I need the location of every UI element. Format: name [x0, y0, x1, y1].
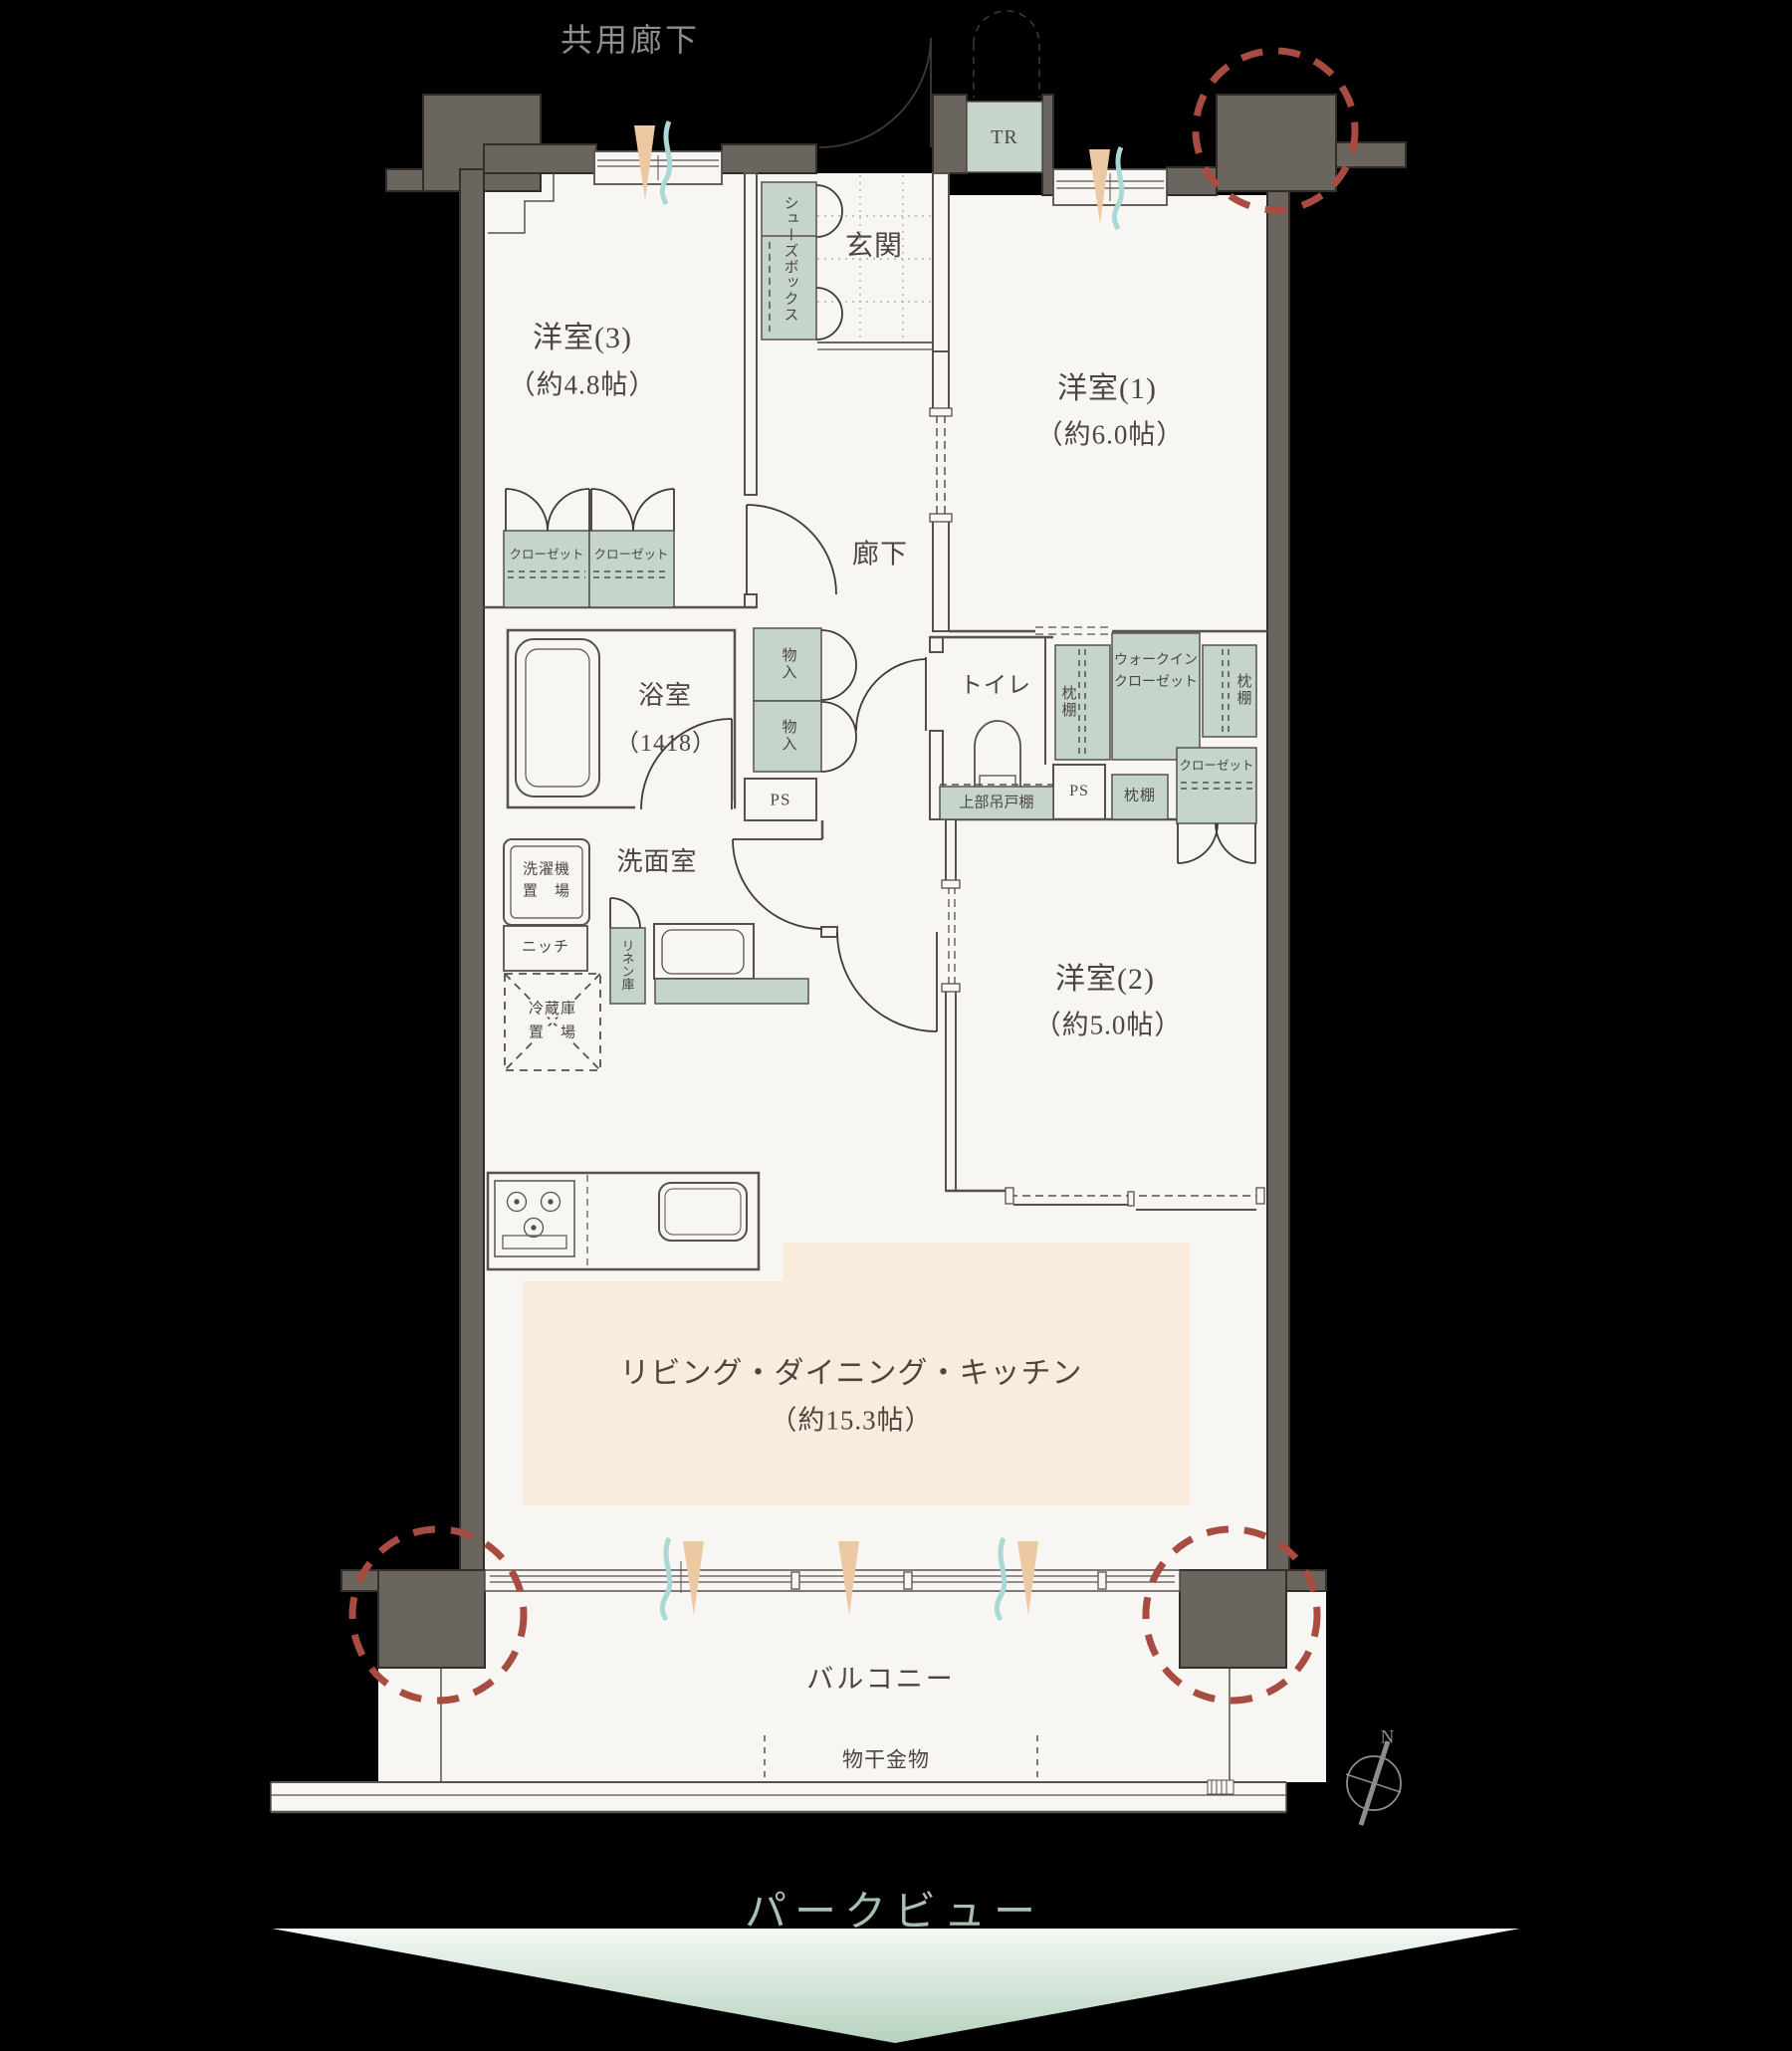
north-label: N [1381, 1728, 1396, 1747]
room1-label: 洋室(1) [1057, 374, 1157, 404]
drain-hatch-icon [1208, 1780, 1233, 1794]
laundry-label-line1: 洗濯機 [523, 863, 570, 878]
wic-label-line1: ウォークイン [1114, 654, 1198, 668]
laundry-hardware-label: 物干金物 [842, 1750, 930, 1771]
bath-label: 浴室 [638, 683, 692, 709]
pillow-shelf-right-label: 枕棚 [1235, 673, 1250, 707]
balcony-label: バルコニー [806, 1667, 955, 1694]
room1-size-label: （約6.0帖） [1036, 422, 1185, 449]
fridge-label-line1: 冷蔵庫 [526, 1003, 579, 1018]
floor-plan-page: 共用廊下 洋室(3) （約4.8帖） 洋室(1) （約6.0帖） 玄関 シューズ… [0, 0, 1792, 2051]
laundry-label-line2: 置 場 [523, 885, 570, 900]
trunk-room-label: TR [991, 127, 1018, 147]
wic-closet-label: クローゼット [1179, 760, 1253, 773]
common-corridor-label: 共用廊下 [560, 24, 700, 56]
ldk-size-label: （約15.3帖） [770, 1408, 932, 1435]
washroom-label: 洗面室 [616, 849, 697, 875]
pillow-shelf-bottom-label: 枕棚 [1124, 790, 1156, 804]
ldk-label: リビング・ダイニング・キッチン [620, 1359, 1083, 1389]
pillow-shelf-left-label: 枕棚 [1060, 685, 1075, 719]
niche-label: ニッチ [522, 941, 569, 956]
fridge-label-line2: 置 場 [526, 1026, 579, 1041]
closet2-label: クローゼット [593, 549, 668, 562]
corridor-label: 廊下 [852, 542, 908, 569]
linen-label: リネン庫 [621, 939, 634, 991]
room3-size-label: （約4.8帖） [509, 372, 657, 399]
floor-plan-drawing [0, 0, 1792, 2051]
bath-size-label: （1418） [615, 732, 717, 756]
room2-label: 洋室(2) [1055, 965, 1155, 995]
wic-label-line2: クローゼット [1114, 676, 1198, 690]
shoes-box-label: シューズボックス [783, 195, 797, 323]
room3-label: 洋室(3) [533, 324, 632, 353]
closet1-label: クローゼット [509, 549, 583, 562]
storage2-label: 物入 [781, 719, 795, 753]
toilet-label: トイレ [960, 674, 1031, 697]
storage1-label: 物入 [781, 647, 795, 681]
room2-size-label: （約5.0帖） [1034, 1013, 1183, 1039]
park-view-label: パークビュー [745, 1892, 1043, 1934]
ps2-label: PS [1069, 784, 1089, 799]
ps1-label: PS [771, 792, 791, 808]
genkan-label: 玄関 [845, 233, 903, 261]
upper-cabinet-label: 上部吊戸棚 [959, 797, 1033, 811]
